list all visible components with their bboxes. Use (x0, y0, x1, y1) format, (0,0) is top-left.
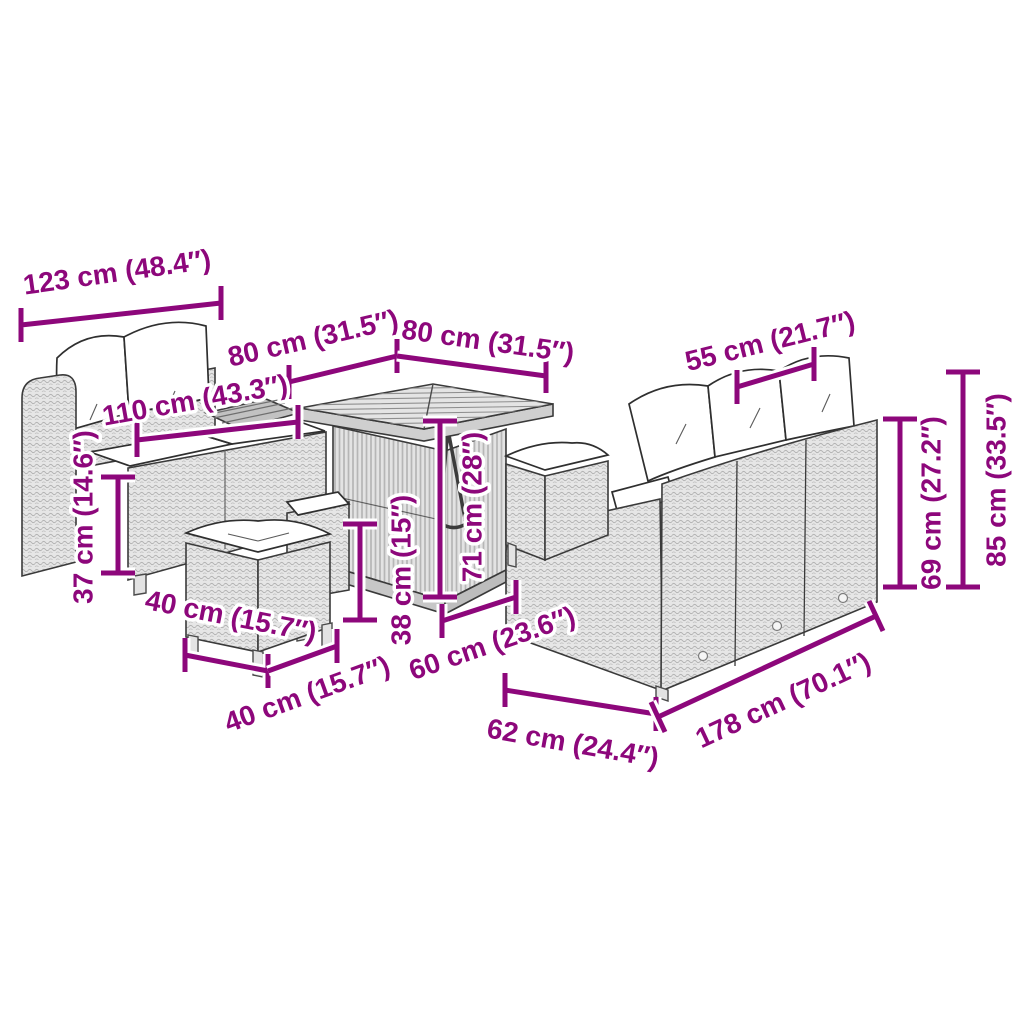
dim-backrest-height: 69 cm (27.2″) (883, 416, 947, 590)
dim-backrest-height-label: 69 cm (27.2″) (916, 416, 947, 590)
back-panel-hole-3 (839, 594, 848, 603)
dim-total-height: 85 cm (33.5″) (946, 372, 1012, 587)
dim-seat-height-label: 37 cm (14.6″) (68, 430, 99, 604)
dim-total-height-label: 85 cm (33.5″) (981, 393, 1012, 567)
dim-left-sofa-width-label: 123 cm (48.4″) (21, 243, 213, 300)
dim-right-sofa-depth: 62 cm (24.4″) (485, 673, 661, 773)
dim-ottoman-height-label: 38 cm (15″) (386, 495, 417, 645)
dim-table-height-label: 71 cm (28″) (457, 432, 488, 582)
dim-table-width: 80 cm (31.5″) (397, 314, 576, 393)
left-sofa-leg-front (134, 574, 146, 595)
back-panel-hole-2 (773, 622, 782, 631)
dimension-diagram-svg: 123 cm (48.4″) 80 cm (31.5″) 80 cm (31.5… (0, 0, 1024, 1024)
dim-total-height-line (946, 372, 980, 587)
back-panel-hole-1 (699, 652, 708, 661)
dim-right-sofa-depth-label: 62 cm (24.4″) (485, 713, 661, 774)
right-ottoman-leg (508, 543, 516, 567)
page: { "diagram": { "type": "furniture-dimens… (0, 0, 1024, 1024)
dim-backrest-height-line (883, 419, 917, 587)
diagram-canvas: 123 cm (48.4″) 80 cm (31.5″) 80 cm (31.5… (0, 0, 1024, 1024)
right-sofa-cushion-1 (629, 384, 715, 481)
